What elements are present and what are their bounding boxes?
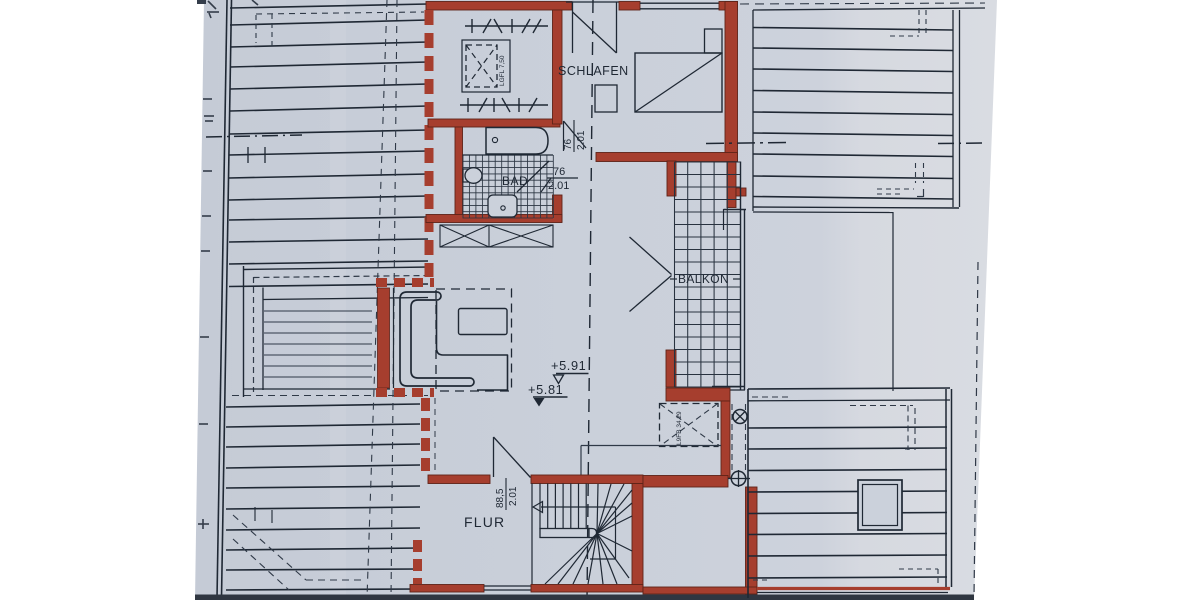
svg-text:88,5: 88,5: [495, 488, 506, 508]
svg-text:2.01: 2.01: [576, 130, 587, 150]
svg-text:SCHLAFEN: SCHLAFEN: [558, 64, 629, 78]
svg-text:76: 76: [563, 138, 574, 150]
svg-text:+5.91: +5.91: [551, 358, 586, 373]
svg-text:L9FB 34,29: L9FB 34,29: [676, 411, 683, 445]
svg-text:+5.81: +5.81: [528, 382, 563, 397]
svg-text:LGFL 7,50: LGFL 7,50: [499, 55, 506, 86]
svg-text:76: 76: [553, 166, 565, 178]
svg-text:2.01: 2.01: [508, 486, 519, 506]
svg-text:BALKON: BALKON: [678, 272, 729, 286]
svg-text:2.01: 2.01: [548, 180, 569, 192]
svg-text:FLUR: FLUR: [464, 514, 505, 530]
svg-text:BAD: BAD: [502, 174, 528, 188]
